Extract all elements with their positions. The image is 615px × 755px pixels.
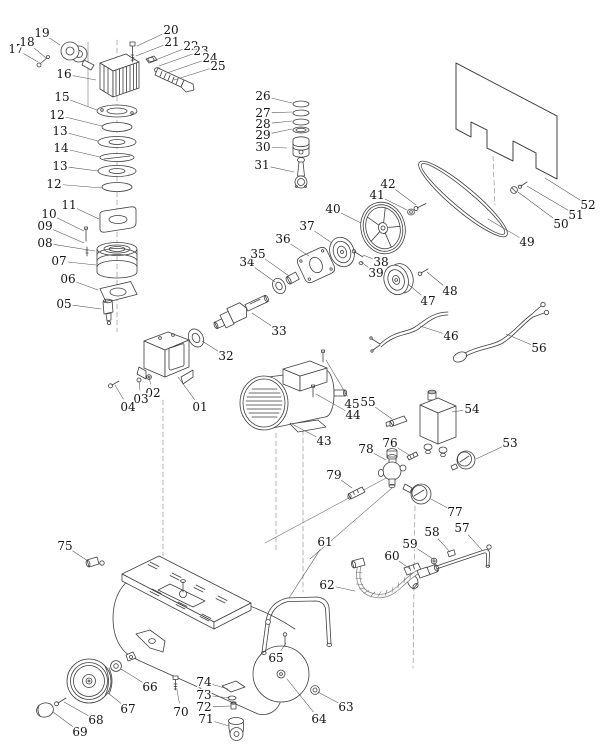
part-number-63: 63 <box>338 700 353 714</box>
part-number-70: 70 <box>173 705 188 719</box>
leader-line-75 <box>73 551 88 561</box>
part-number-30: 30 <box>255 140 270 154</box>
power-cord-46 <box>370 312 448 352</box>
pin-76 <box>407 452 418 460</box>
leader-line-79 <box>341 480 352 488</box>
part-number-78: 78 <box>358 442 373 456</box>
leader-line-28 <box>272 121 292 123</box>
screw-17 <box>37 63 41 67</box>
bearing-34 <box>270 276 288 296</box>
bolt-70 <box>173 676 178 690</box>
leader-line-34 <box>254 267 275 282</box>
leader-line-53 <box>476 447 502 459</box>
leader-line-51 <box>527 186 568 210</box>
part-number-26: 26 <box>255 89 270 103</box>
fitting-05 <box>103 299 113 324</box>
part-number-66: 66 <box>142 680 157 694</box>
gauge-77 <box>403 484 431 504</box>
leader-line-09 <box>53 230 84 243</box>
part-number-43: 43 <box>316 434 331 448</box>
leader-line-12 <box>66 117 102 126</box>
leader-line-16 <box>73 76 96 80</box>
part-number-16: 16 <box>56 67 71 81</box>
part-number-74: 74 <box>196 675 212 689</box>
crankcase <box>137 332 193 384</box>
part-number-08: 08 <box>37 236 52 250</box>
parts-diagram: 0102030405060708091011121314131215161718… <box>0 0 615 755</box>
part-number-71: 71 <box>198 712 213 726</box>
fitting-55 <box>386 416 407 427</box>
gauge-53 <box>451 451 475 470</box>
part-number-11: 11 <box>61 198 76 212</box>
plug-63 <box>311 686 320 695</box>
part-number-75: 75 <box>57 539 72 553</box>
part-number-06: 06 <box>60 272 75 286</box>
leader-line-37 <box>314 231 332 243</box>
part-number-68: 68 <box>88 713 103 727</box>
part-number-13: 13 <box>52 159 67 173</box>
part-number-77: 77 <box>447 505 462 519</box>
guard-screws-50-51 <box>511 182 527 193</box>
part-number-14: 14 <box>53 141 69 155</box>
part-number-73: 73 <box>196 688 211 702</box>
piston-rings <box>293 101 309 133</box>
leader-line-15 <box>70 100 97 110</box>
part-number-45: 45 <box>344 397 359 411</box>
connecting-rod <box>295 158 307 189</box>
leader-line-70 <box>177 690 179 703</box>
part-number-49: 49 <box>519 235 534 249</box>
washer-66 <box>111 661 122 672</box>
part-number-62: 62 <box>319 578 334 592</box>
leader-line-05 <box>73 305 101 309</box>
part-number-15: 15 <box>54 90 69 104</box>
part-number-79: 79 <box>326 468 341 482</box>
leader-line-25 <box>174 69 209 80</box>
leader-line-24 <box>167 61 202 73</box>
leader-line-35 <box>265 259 289 276</box>
part-number-64: 64 <box>311 712 327 726</box>
part-number-33: 33 <box>271 324 286 338</box>
part-number-01: 01 <box>192 400 207 414</box>
belt-guard-mesh <box>456 63 557 179</box>
leader-line-10 <box>57 218 84 231</box>
part-number-35: 35 <box>250 247 265 261</box>
motor <box>240 361 347 432</box>
discharge-hose-62 <box>351 558 440 597</box>
leader-line-56 <box>506 334 531 344</box>
part-number-52: 52 <box>580 198 595 212</box>
part-number-03: 03 <box>133 392 148 406</box>
leader-line-72 <box>213 706 231 707</box>
leader-line-29 <box>272 129 292 133</box>
part-number-60: 60 <box>384 549 399 563</box>
leader-line-33 <box>252 313 272 326</box>
part-number-04: 04 <box>120 400 136 414</box>
pressure-switch-54 <box>420 390 456 456</box>
leader-line-14 <box>70 150 100 157</box>
cylinder-head <box>100 54 139 97</box>
part-number-13: 13 <box>52 124 67 138</box>
part-number-42: 42 <box>380 177 395 191</box>
part-number-21: 21 <box>164 35 179 49</box>
leader-line-13 <box>69 133 98 141</box>
leader-line-63 <box>318 692 338 703</box>
part-number-39: 39 <box>368 266 383 280</box>
part-number-61: 61 <box>317 535 332 549</box>
part-number-47: 47 <box>420 294 435 308</box>
hub-cap-69 <box>35 701 55 719</box>
leader-line-55 <box>375 407 392 419</box>
v-belt <box>412 153 515 245</box>
nut-59 <box>431 558 437 564</box>
leader-line-50 <box>518 192 554 219</box>
part-number-65: 65 <box>268 651 283 665</box>
leader-line-49 <box>488 219 519 237</box>
crankshaft <box>210 291 272 332</box>
part-number-56: 56 <box>531 341 546 355</box>
leader-line-21 <box>136 45 164 56</box>
leader-line-36 <box>291 244 309 256</box>
part-number-07: 07 <box>51 254 66 268</box>
leader-line-40 <box>341 213 361 223</box>
leader-line-52 <box>545 178 580 200</box>
part-number-19: 19 <box>34 26 49 40</box>
part-number-32: 32 <box>218 349 233 363</box>
part-number-50: 50 <box>553 217 568 231</box>
leader-line-69 <box>53 712 73 727</box>
flywheel <box>355 197 411 259</box>
part-number-25: 25 <box>210 59 225 73</box>
part-number-48: 48 <box>442 284 457 298</box>
leader-line-31 <box>271 167 294 172</box>
leader-line-38 <box>363 255 373 259</box>
part-number-10: 10 <box>41 207 56 221</box>
part-number-46: 46 <box>443 329 458 343</box>
leader-line-42 <box>395 189 416 205</box>
leader-line-59 <box>418 549 433 559</box>
plug-75 <box>85 557 104 567</box>
stud-bolts-09-10 <box>85 227 89 256</box>
drain-valve-71 <box>229 718 244 741</box>
part-number-18: 18 <box>19 35 34 49</box>
leader-line-30 <box>272 147 287 148</box>
leader-line-71 <box>215 722 229 726</box>
leader-line-48 <box>427 272 443 285</box>
part-number-09: 09 <box>37 219 52 233</box>
part-number-36: 36 <box>275 232 290 246</box>
part-number-76: 76 <box>382 436 397 450</box>
part-number-12: 12 <box>46 177 61 191</box>
wheel-67 <box>67 659 112 703</box>
handle-61 <box>261 597 331 655</box>
leader-line-32 <box>202 341 218 351</box>
part-number-31: 31 <box>254 158 269 172</box>
leader-line-66 <box>121 669 142 682</box>
part-number-53: 53 <box>502 436 517 450</box>
part-number-59: 59 <box>402 537 417 551</box>
leader-line-67 <box>108 693 121 703</box>
leader-line-18 <box>34 48 46 58</box>
part-number-55: 55 <box>360 395 375 409</box>
leader-line-07 <box>68 262 96 265</box>
part-number-05: 05 <box>56 297 71 311</box>
part-number-37: 37 <box>299 219 314 233</box>
drain-stem-72 <box>231 702 236 709</box>
leader-line-46 <box>420 326 442 333</box>
flywheel-washer-bolt-41-42 <box>408 204 426 216</box>
leader-line-58 <box>438 539 450 552</box>
nipple-79 <box>348 487 365 499</box>
leader-line-62 <box>336 587 355 591</box>
leader-line-20 <box>137 34 163 46</box>
leader-line-57 <box>468 535 482 550</box>
part-number-67: 67 <box>120 702 135 716</box>
leader-line-17 <box>24 54 38 62</box>
washer-18 <box>47 56 50 59</box>
leader-line-78 <box>374 453 386 460</box>
leader-line-19 <box>49 38 60 45</box>
leader-line-77 <box>431 499 447 508</box>
part-number-58: 58 <box>424 525 439 539</box>
leader-line-06 <box>76 282 98 290</box>
part-number-57: 57 <box>454 521 469 535</box>
leader-line-23 <box>159 54 193 66</box>
leader-line-68 <box>64 702 88 716</box>
fitting-bolt-22-25 <box>146 56 194 92</box>
part-number-40: 40 <box>325 202 340 216</box>
leader-line-12 <box>63 185 102 188</box>
regulator-valve-78 <box>378 449 406 488</box>
leader-line-08 <box>54 244 95 251</box>
leader-line-11 <box>77 209 99 219</box>
leader-line-76 <box>398 448 409 455</box>
part-number-69: 69 <box>72 725 87 739</box>
part-number-12: 12 <box>49 108 64 122</box>
pulley-bolt-48 <box>418 269 428 276</box>
leader-line-61 <box>289 550 320 598</box>
leader-line-04 <box>115 385 123 399</box>
sleeve-35 <box>285 272 299 285</box>
piston <box>293 137 309 157</box>
valve-plate-stack <box>97 105 137 232</box>
part-number-72: 72 <box>196 700 211 714</box>
leader-line-03 <box>139 381 140 390</box>
breather-assembly <box>37 42 94 70</box>
leader-line-13 <box>69 167 98 171</box>
leader-line-26 <box>272 98 292 103</box>
part-number-54: 54 <box>464 402 480 416</box>
leader-line-27 <box>272 112 292 113</box>
